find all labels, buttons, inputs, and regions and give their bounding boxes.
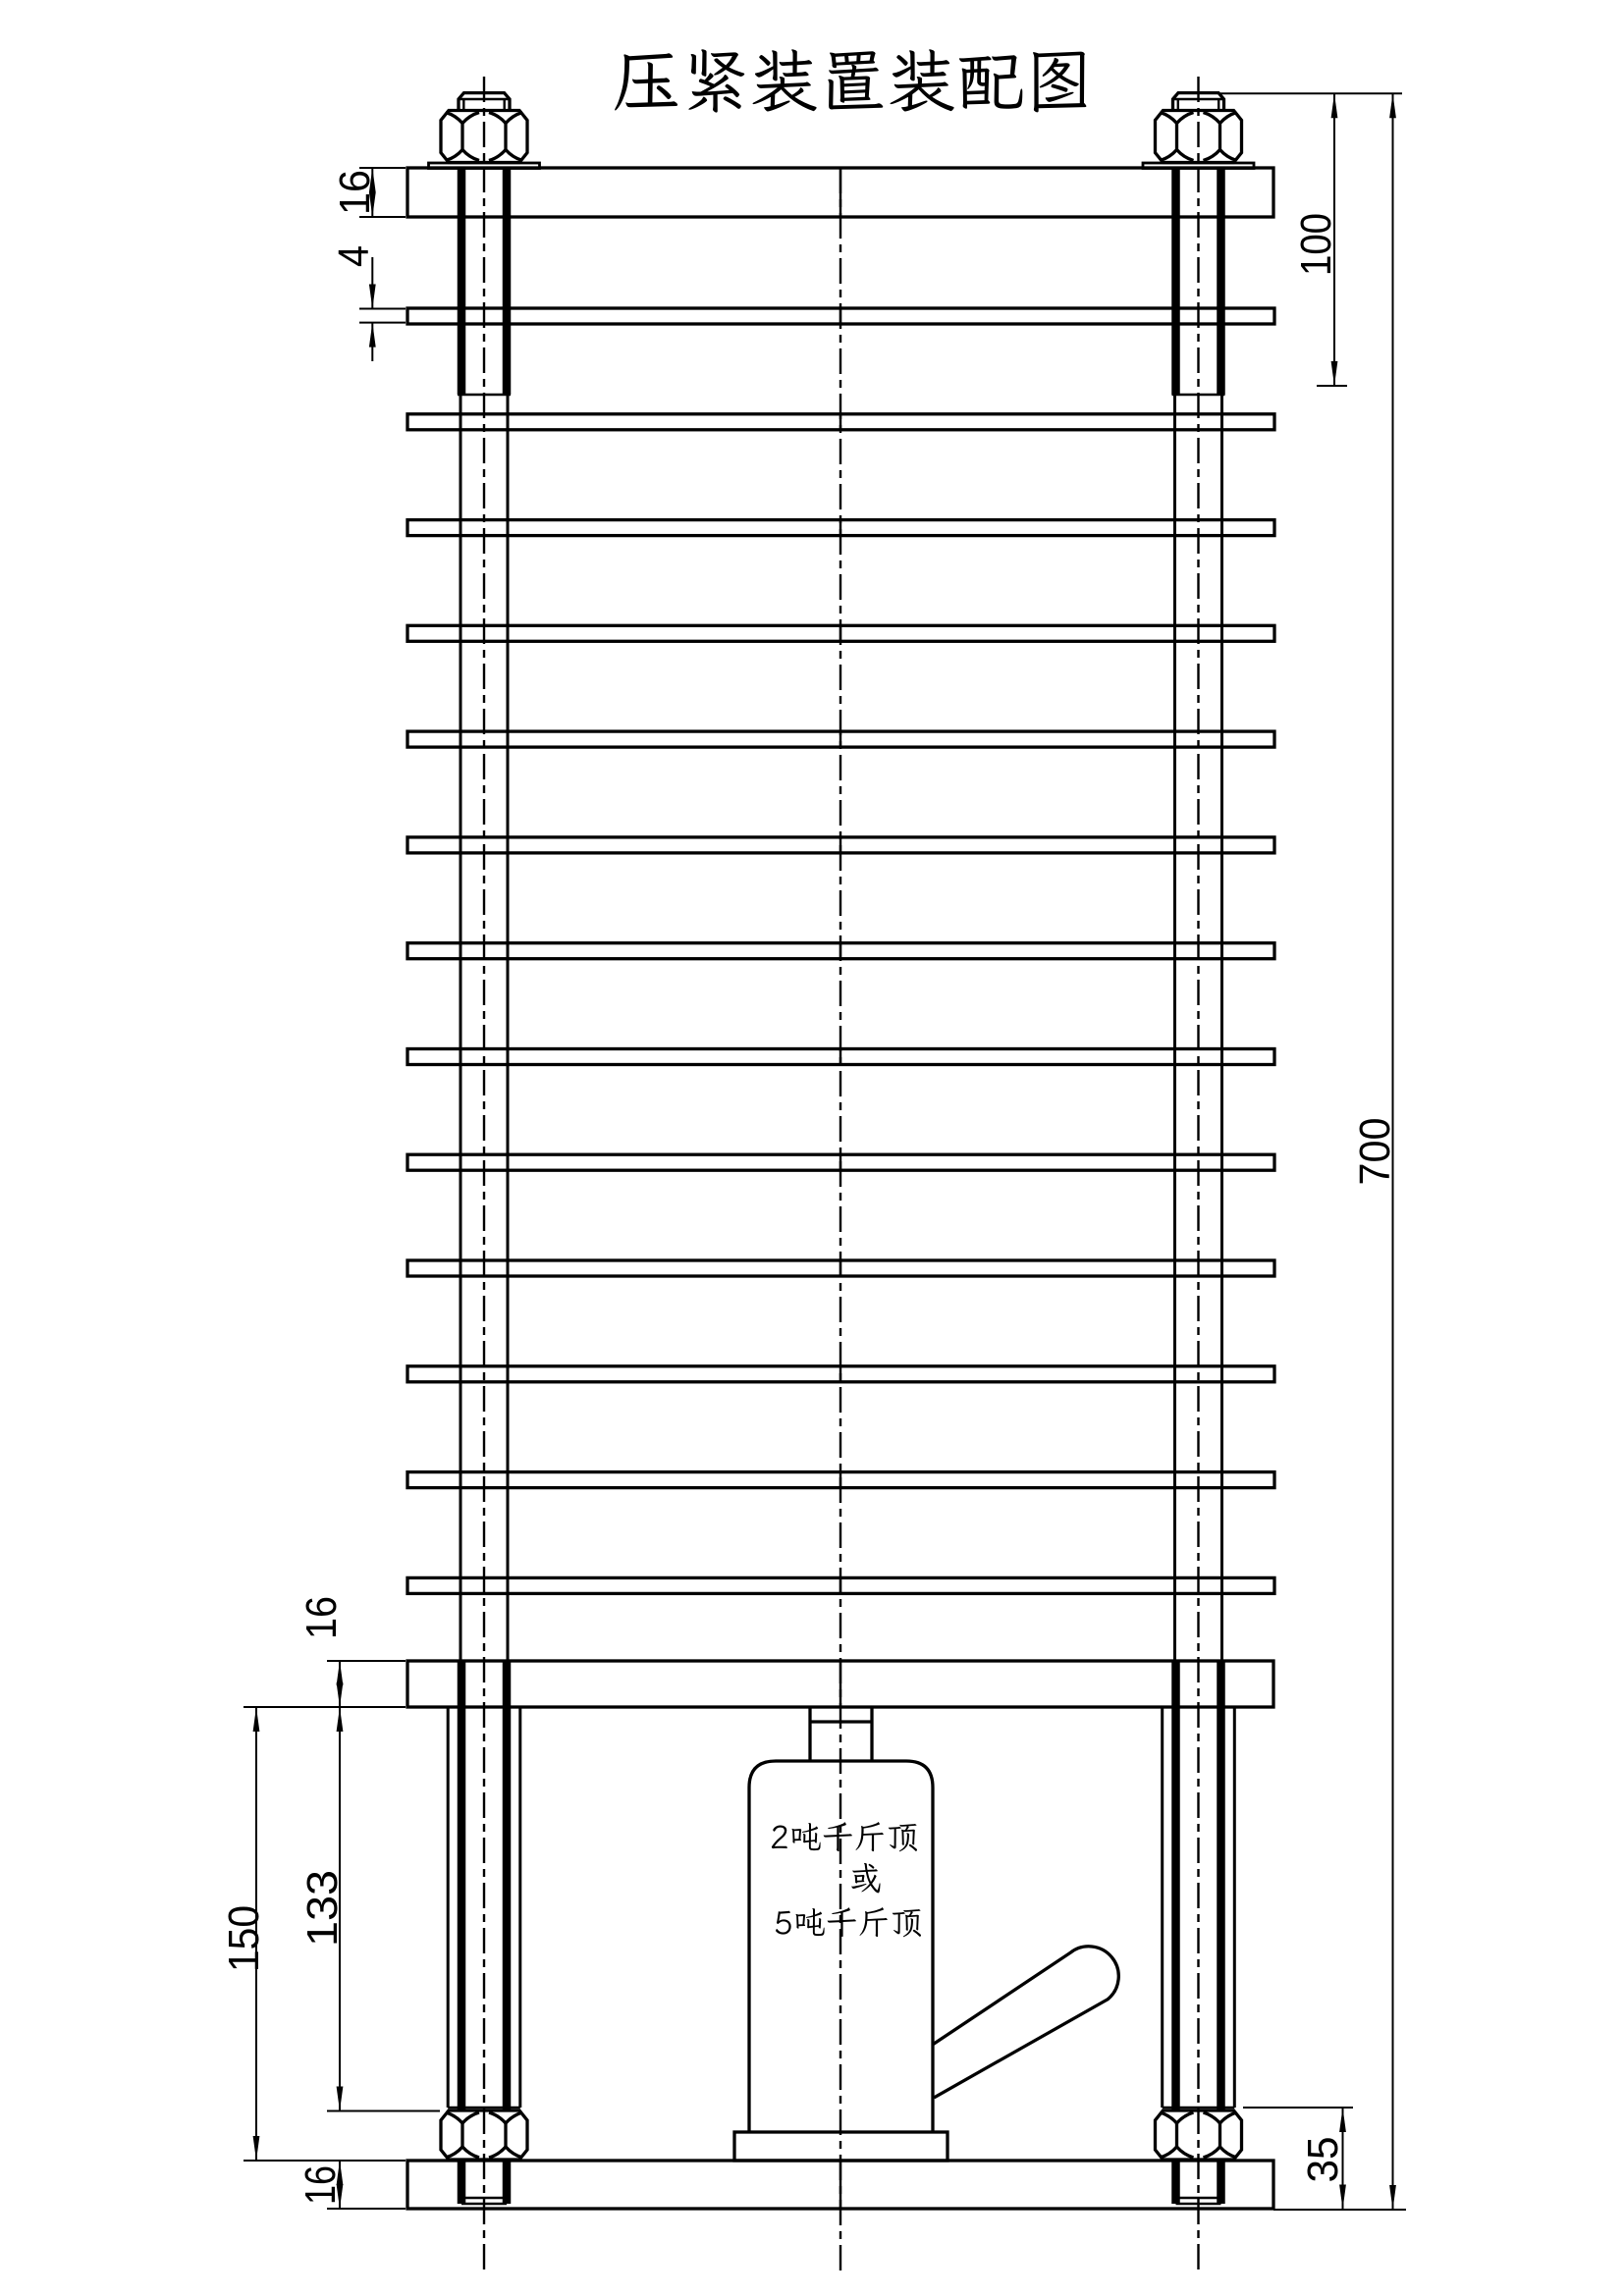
svg-text:133: 133 xyxy=(298,1870,347,1947)
svg-text:4: 4 xyxy=(330,245,378,267)
svg-text:16: 16 xyxy=(297,2165,345,2205)
svg-text:16: 16 xyxy=(298,1596,346,1639)
svg-text:35: 35 xyxy=(1299,2137,1347,2183)
svg-text:16: 16 xyxy=(331,170,379,215)
svg-text:100: 100 xyxy=(1292,213,1340,276)
svg-text:700: 700 xyxy=(1351,1118,1399,1186)
svg-text:150: 150 xyxy=(220,1905,268,1972)
